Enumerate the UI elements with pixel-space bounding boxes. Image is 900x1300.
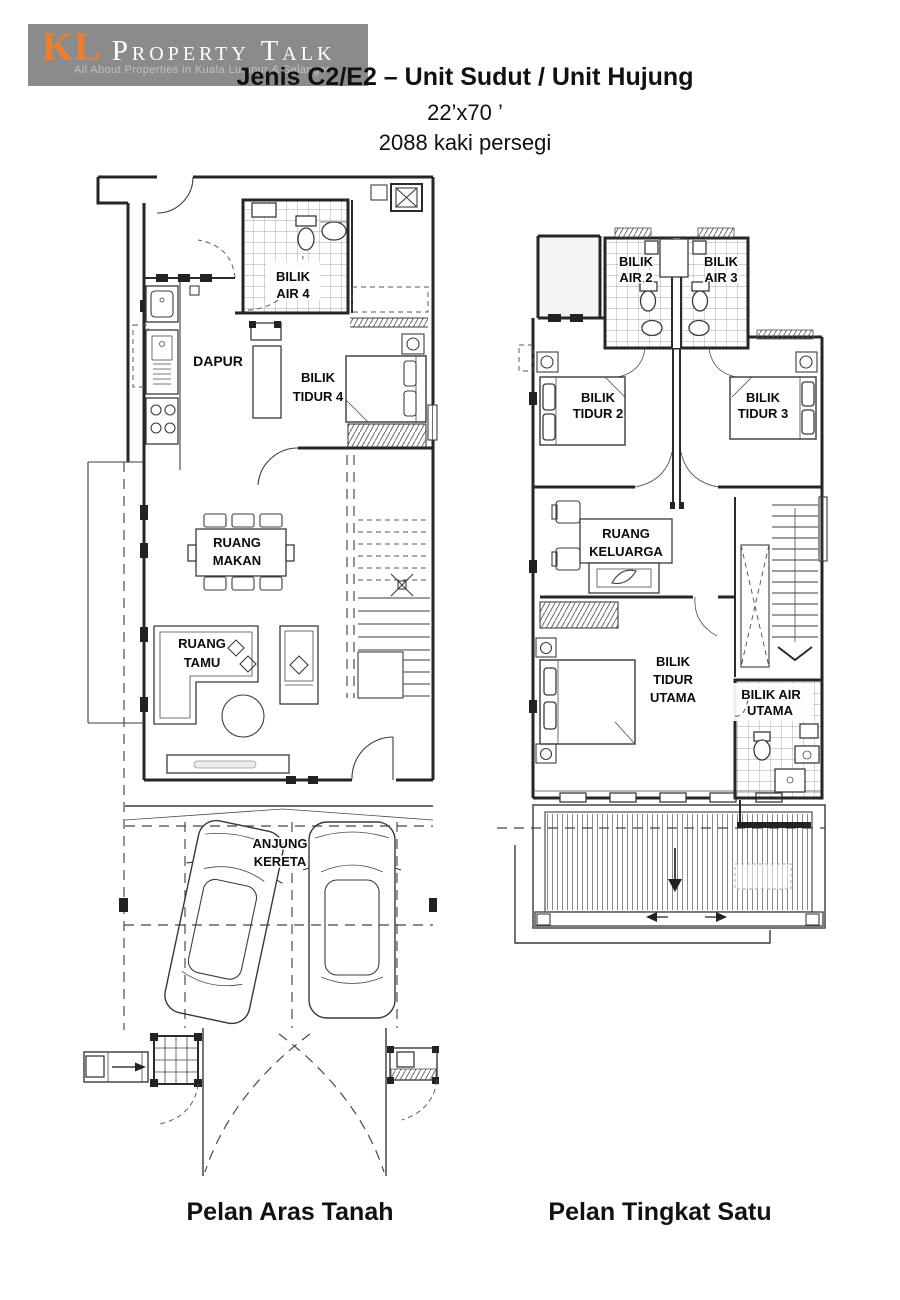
room-label-ruang-tamu: RUANG — [178, 636, 226, 651]
bathroom-4 — [235, 200, 348, 418]
room-label-bilik-tidur-2: BILIK — [581, 390, 616, 405]
svg-text:MAKAN: MAKAN — [213, 553, 261, 568]
room-label-bilik-air-4: BILIK — [276, 269, 311, 284]
ground-floor-caption: Pelan Aras Tanah — [150, 1198, 430, 1227]
ceiling-fan-icon — [391, 574, 413, 596]
chair-icon — [556, 548, 580, 570]
bathrooms-2-3 — [605, 228, 748, 377]
chair-icon — [556, 501, 580, 523]
left-gate-assembly — [84, 1033, 202, 1124]
svg-text:TIDUR 4: TIDUR 4 — [293, 389, 344, 404]
room-label-bilik-air-utama: BILIK AIR — [741, 687, 801, 702]
staircase-first — [735, 497, 818, 677]
room-label-bilik-tidur-utama: BILIK — [656, 654, 691, 669]
title-block: Jenis C2/E2 – Unit Sudut / Unit Hujung 2… — [180, 62, 750, 158]
staircase-ground — [347, 455, 430, 698]
basin-icon — [689, 321, 709, 336]
room-label-bilik-air-3: BILIK — [704, 254, 739, 269]
car-straight-icon — [303, 822, 401, 1018]
right-gate-assembly — [387, 1046, 439, 1120]
svg-text:TAMU: TAMU — [184, 655, 221, 670]
toilet-icon — [296, 216, 316, 226]
basin-icon — [642, 321, 662, 336]
room-label-bilik-tidur-4: BILIK — [301, 370, 336, 385]
gate-area — [84, 1028, 439, 1176]
ground-floor-plan: BILIK AIR 4 DAPUR BILIK TIDUR 4 RUANG MA… — [84, 177, 439, 1176]
room-label-anjung-kereta: ANJUNG — [253, 836, 308, 851]
room-label-bilik-tidur-3: BILIK — [746, 390, 781, 405]
gate-arrow-icon — [135, 1063, 146, 1072]
svg-text:KELUARGA: KELUARGA — [589, 544, 663, 559]
corridor — [533, 348, 822, 509]
unit-type-title: Jenis C2/E2 – Unit Sudut / Unit Hujung — [180, 62, 750, 92]
floor-plan-drawing: BILIK AIR 4 DAPUR BILIK TIDUR 4 RUANG MA… — [0, 0, 900, 1300]
logo-prefix: KL — [42, 26, 102, 68]
kitchen-counter — [146, 282, 180, 470]
first-floor-caption: Pelan Tingkat Satu — [530, 1198, 790, 1227]
room-label-ruang-keluarga: RUANG — [602, 526, 650, 541]
shower-icon — [775, 769, 805, 792]
svg-text:AIR 3: AIR 3 — [704, 270, 737, 285]
svg-text:AIR 4: AIR 4 — [276, 286, 310, 301]
rug-icon — [222, 695, 264, 737]
bedroom-4 — [346, 334, 426, 447]
svg-text:UTAMA: UTAMA — [747, 703, 794, 718]
room-label-ruang-makan: RUANG — [213, 535, 261, 550]
lounge-chair-icon — [280, 626, 318, 704]
basin-icon — [322, 222, 346, 240]
room-label-bilik-air-2: BILIK — [619, 254, 654, 269]
master-bedroom — [536, 602, 635, 763]
room-label-dapur: DAPUR — [193, 353, 243, 369]
tv-cabinet-icon — [589, 563, 659, 593]
roof-deck — [497, 800, 825, 943]
stair-down-arrow-icon — [778, 647, 812, 660]
hall-wall — [258, 448, 433, 485]
first-floor-plan: BILIK AIR 2 BILIK AIR 3 BILIK TIDUR 2 BI… — [497, 228, 827, 943]
svg-text:TIDUR: TIDUR — [653, 672, 693, 687]
unit-area: 2088 kaki persegi — [180, 128, 750, 158]
store-ledge — [350, 184, 428, 327]
faded-stamp — [735, 864, 791, 889]
svg-text:TIDUR 3: TIDUR 3 — [738, 406, 789, 421]
flyer-page: KL Property Talk All About Properties in… — [0, 0, 900, 1300]
unit-dimensions: 22’x70 ’ — [180, 98, 750, 128]
dining-table — [188, 514, 294, 590]
svg-text:KERETA: KERETA — [254, 854, 307, 869]
svg-text:UTAMA: UTAMA — [650, 690, 697, 705]
side-table-icon — [402, 334, 424, 354]
svg-text:AIR 2: AIR 2 — [619, 270, 652, 285]
svg-text:TIDUR 2: TIDUR 2 — [573, 406, 624, 421]
